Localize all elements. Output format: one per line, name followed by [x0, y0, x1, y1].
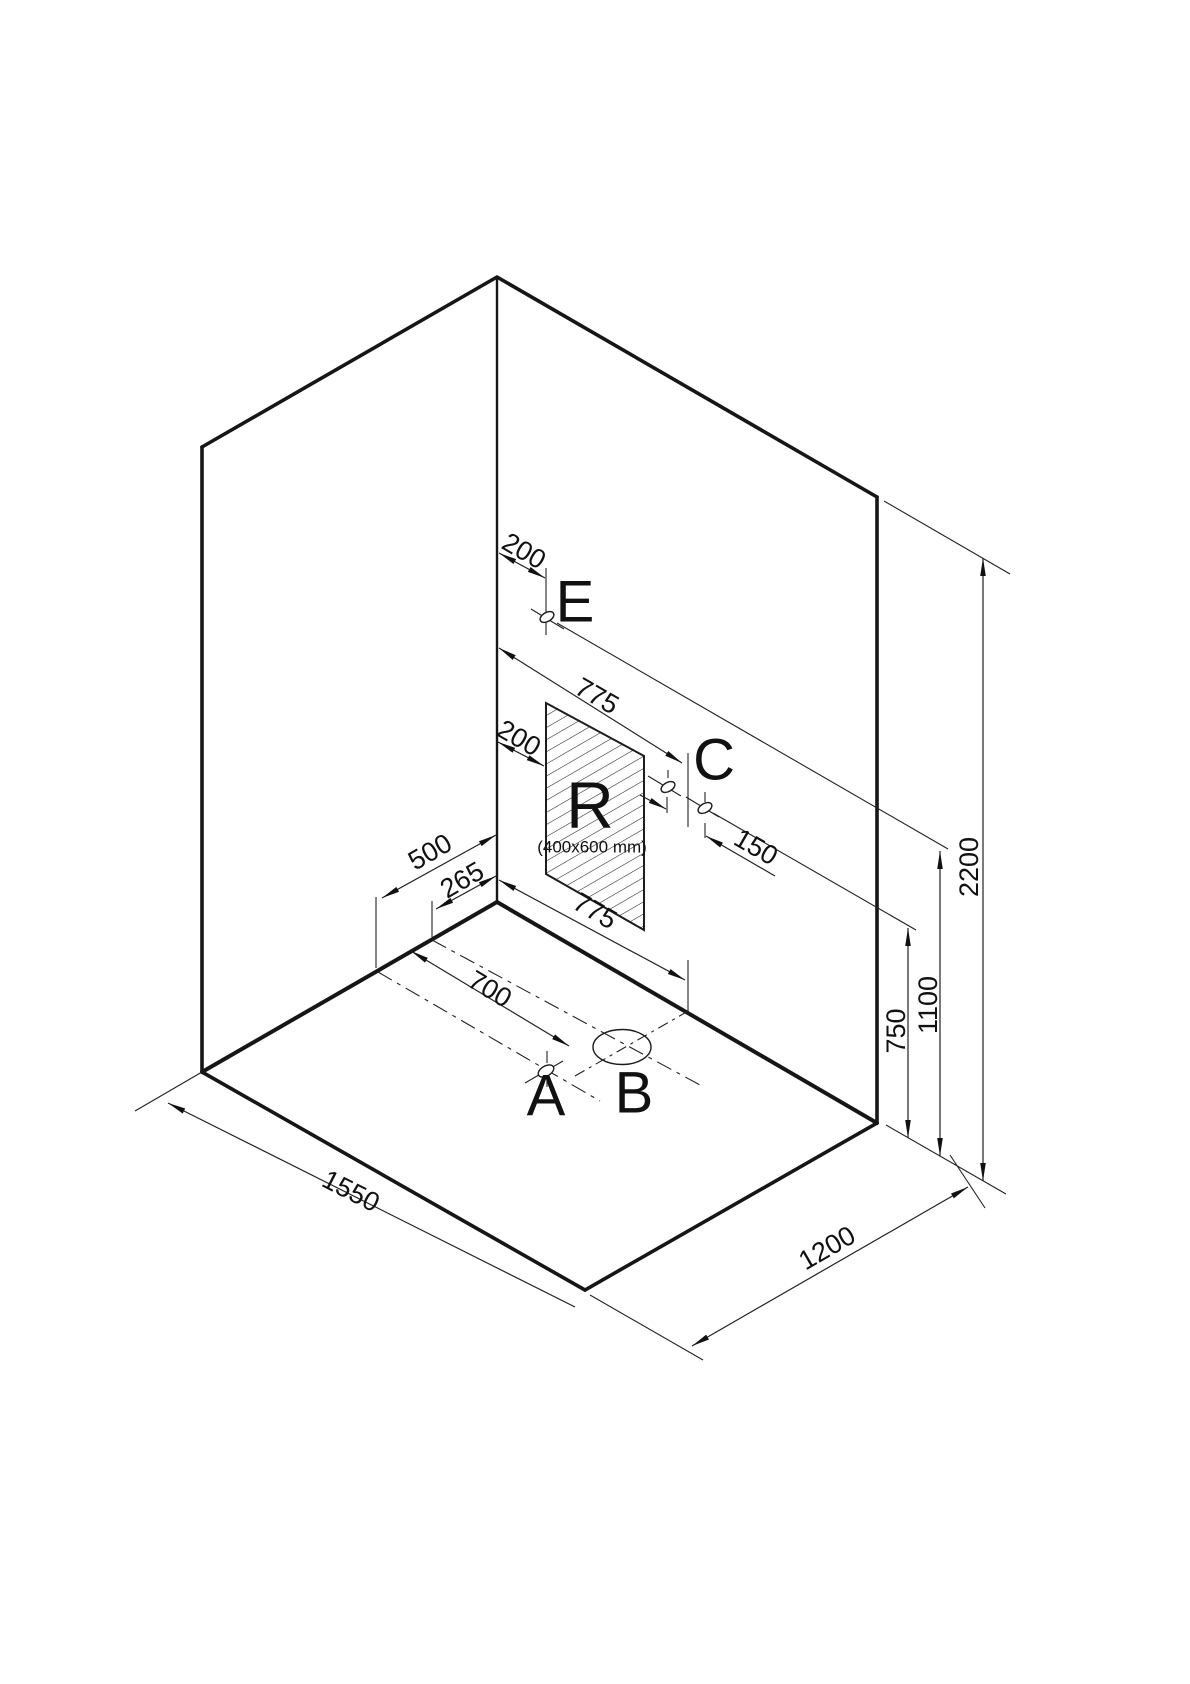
label-point-c: C [693, 728, 735, 793]
label-750: 750 [881, 1008, 911, 1053]
label-point-e: E [556, 570, 595, 635]
label-200-recess: 200 [492, 714, 546, 763]
ext-walltop-to-2200 [884, 501, 1010, 574]
point-c2-circle [696, 800, 713, 815]
label-recess-r: R [566, 768, 614, 842]
label-point-b: B [615, 1061, 654, 1126]
label-point-a: A [527, 1064, 566, 1129]
label-1100: 1100 [913, 976, 943, 1034]
dim-1200 [692, 1187, 968, 1346]
point-b-circle [593, 1030, 651, 1065]
label-150: 150 [729, 823, 783, 872]
centerline-through-b [432, 940, 700, 1085]
labels: 200 775 200 150 775 500 265 700 1550 120… [317, 527, 984, 1276]
ext-floor-corner [590, 1295, 703, 1360]
room-outline [202, 277, 877, 1290]
drawing-canvas: 200 775 200 150 775 500 265 700 1550 120… [0, 0, 1190, 1684]
label-775-top: 775 [570, 672, 624, 721]
label-2200: 2200 [954, 837, 984, 897]
label-500: 500 [403, 828, 457, 877]
left-wall-floor-junction [202, 902, 497, 1072]
ext-1200-right [950, 1155, 985, 1208]
wall-top-edges [202, 277, 877, 497]
label-700: 700 [463, 965, 517, 1014]
label-recess-size: (400x600 mm) [537, 838, 647, 857]
ext-floor-to-heights [886, 1125, 1006, 1194]
isometric-installation-drawing: { "drawing": { "description": "Isometric… [0, 0, 1190, 1684]
label-200-e: 200 [497, 527, 551, 576]
ext-1550-left [135, 1072, 202, 1111]
label-265: 265 [435, 856, 489, 905]
